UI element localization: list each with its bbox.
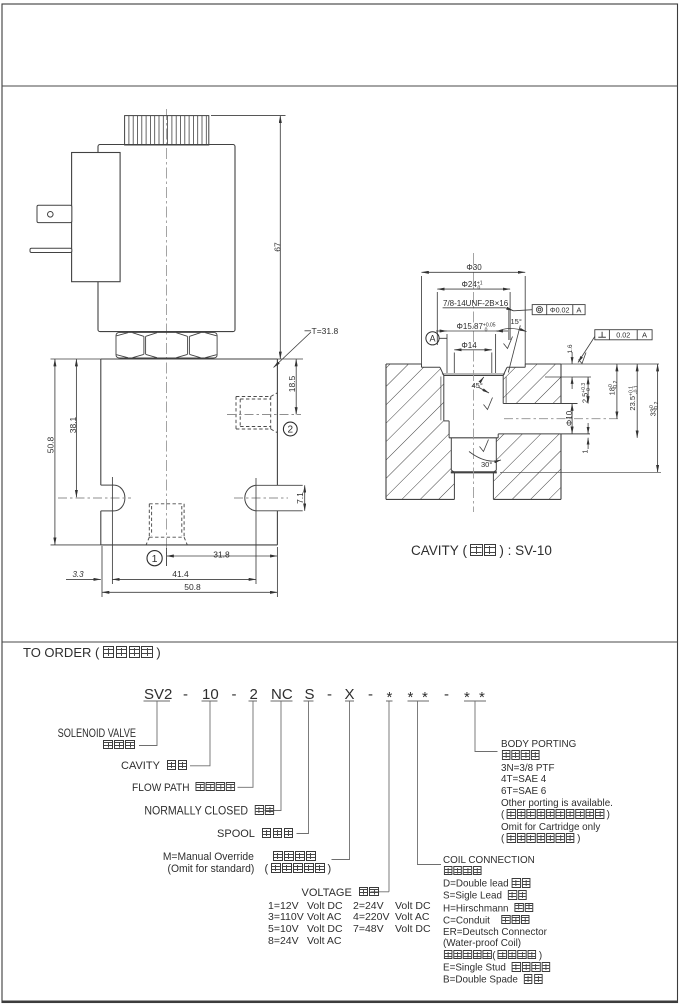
svg-text:38.1: 38.1 — [68, 416, 78, 433]
svg-text:T=31.8: T=31.8 — [312, 326, 339, 336]
svg-text:15°: 15° — [511, 317, 522, 326]
svg-text:Φ10: Φ10 — [565, 410, 574, 426]
svg-text:45°: 45° — [472, 381, 483, 390]
svg-text:50.8: 50.8 — [184, 582, 201, 592]
svg-text:Φ15.87+0.050: Φ15.87+0.050 — [457, 322, 496, 334]
svg-text:67: 67 — [273, 242, 283, 252]
svg-text:3.3: 3.3 — [72, 570, 84, 579]
svg-text:41.4: 41.4 — [172, 569, 189, 579]
svg-text:23.5+0.1-0.1: 23.5+0.1-0.1 — [628, 385, 640, 410]
svg-text:1: 1 — [152, 553, 158, 565]
svg-text:180-0.2: 180-0.2 — [608, 380, 620, 395]
svg-text:7.1: 7.1 — [295, 492, 305, 504]
svg-text:Φ14: Φ14 — [461, 341, 477, 350]
svg-text:30°: 30° — [481, 460, 492, 469]
svg-text:Φ24+10: Φ24+10 — [462, 280, 483, 292]
svg-text:A: A — [429, 334, 435, 344]
svg-text:0.02: 0.02 — [616, 331, 630, 340]
svg-text:330-0.2: 330-0.2 — [648, 401, 660, 416]
svg-text:31.8: 31.8 — [213, 549, 230, 559]
svg-text:Φ0.02: Φ0.02 — [550, 305, 570, 314]
svg-text:18.5: 18.5 — [287, 375, 297, 392]
svg-text:2: 2 — [288, 425, 294, 436]
svg-text:Φ30: Φ30 — [466, 263, 482, 272]
svg-text:1: 1 — [581, 449, 590, 453]
svg-text:1.6: 1.6 — [567, 344, 574, 353]
svg-text:2.5+0.30: 2.5+0.30 — [581, 383, 593, 404]
svg-text:50.8: 50.8 — [45, 436, 55, 453]
svg-text:7/8-14UNF-2B×16: 7/8-14UNF-2B×16 — [443, 299, 509, 308]
